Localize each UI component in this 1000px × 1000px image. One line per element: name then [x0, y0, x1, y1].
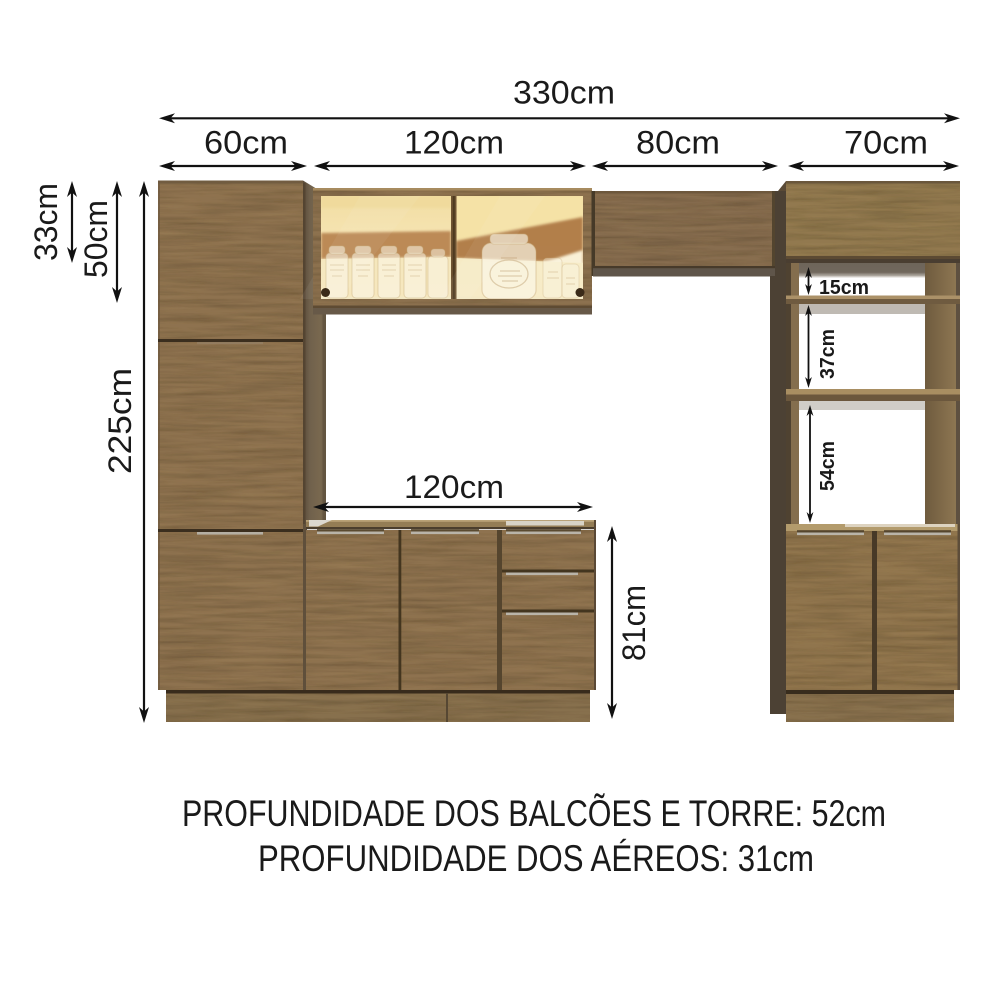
- svg-text:PROFUNDIDADE DOS BALCÕES E TOR: PROFUNDIDADE DOS BALCÕES E TORRE: 52cm: [182, 793, 886, 834]
- svg-text:37cm: 37cm: [816, 329, 839, 379]
- svg-text:54cm: 54cm: [816, 441, 839, 491]
- svg-text:81cm: 81cm: [616, 585, 652, 661]
- svg-text:70cm: 70cm: [844, 125, 928, 161]
- svg-text:120cm: 120cm: [404, 469, 504, 505]
- svg-text:80cm: 80cm: [636, 125, 720, 161]
- svg-text:50cm: 50cm: [78, 200, 114, 278]
- svg-text:33cm: 33cm: [28, 183, 64, 261]
- svg-text:330cm: 330cm: [513, 75, 615, 111]
- svg-text:15cm: 15cm: [819, 276, 869, 299]
- svg-text:PROFUNDIDADE DOS AÉREOS: 31cm: PROFUNDIDADE DOS AÉREOS: 31cm: [258, 838, 814, 879]
- svg-text:225cm: 225cm: [102, 368, 138, 474]
- svg-text:60cm: 60cm: [204, 125, 288, 161]
- svg-text:120cm: 120cm: [404, 125, 504, 161]
